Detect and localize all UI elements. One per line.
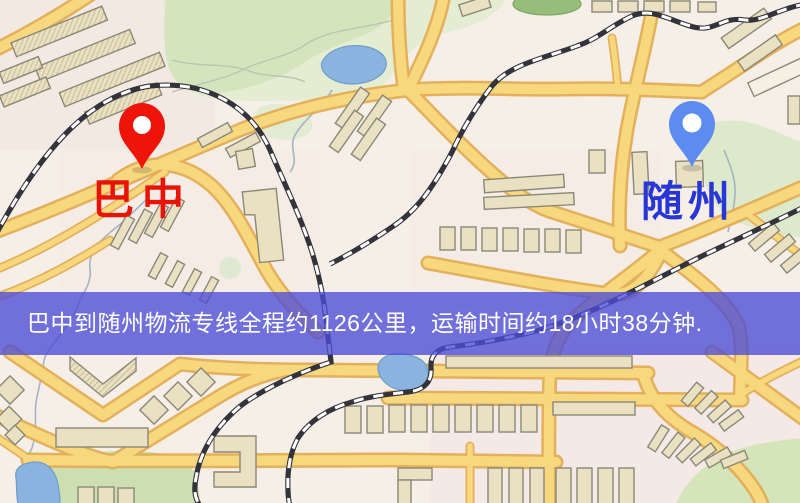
route-info-banner: 巴中到随州物流专线全程约1126公里，运输时间约18小时38分钟. xyxy=(0,292,800,355)
route-info-text: 巴中到随州物流专线全程约1126公里，运输时间约18小时38分钟. xyxy=(27,310,703,336)
destination-city-label: 随州 xyxy=(641,178,735,225)
origin-pin-hole xyxy=(133,116,151,134)
map-canvas: 巴中 随州 xyxy=(0,0,800,503)
logistics-map-image: 巴中 随州 巴中到随州物流专线全程约1126公里，运输时间约18小时38分钟. xyxy=(0,0,800,503)
destination-pin-hole xyxy=(683,114,702,133)
origin-city-label: 巴中 xyxy=(92,176,192,223)
